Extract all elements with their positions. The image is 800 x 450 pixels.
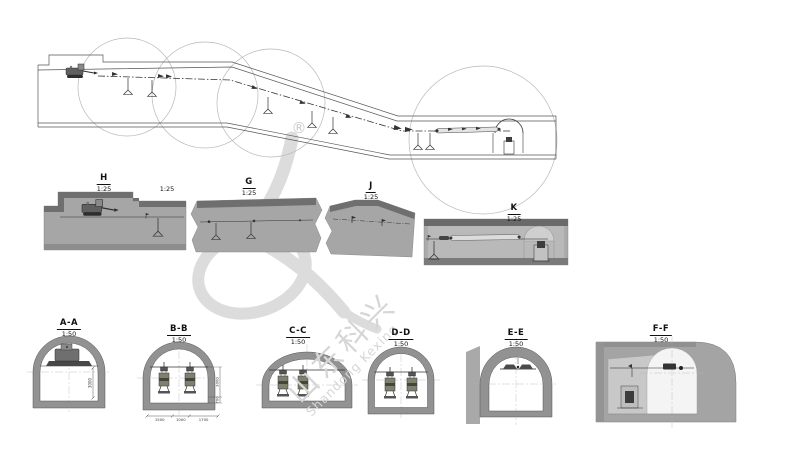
drawing-sheet: ® [0, 0, 800, 450]
belt-conveyor-plan [434, 127, 500, 133]
conveyor-supports [123, 78, 435, 150]
svg-text:1000: 1000 [176, 417, 186, 422]
plan-view [38, 38, 557, 214]
svg-text:700: 700 [215, 396, 220, 404]
svg-text:3000: 3000 [87, 377, 92, 388]
section-k-view [424, 219, 568, 265]
side-slab [466, 346, 480, 424]
dimension-b-horizontal: 1500 1000 1700 [146, 415, 220, 422]
conveyor-drive [663, 364, 676, 370]
roadheader-machine-plan [66, 64, 98, 78]
control-cabinet-plan [504, 137, 514, 154]
svg-text:1700: 1700 [199, 417, 209, 422]
cad-drawing: 3000 3000 700 [0, 0, 800, 450]
cross-section-d [362, 340, 440, 420]
tunnel-plan-outline [38, 55, 556, 159]
label-cross-section-f: F-F 1:50 [650, 317, 672, 344]
label-section-j: J 1:25 [364, 174, 379, 201]
section-j-view [325, 200, 415, 257]
label-cross-section-d: D-D 1:50 [388, 321, 413, 348]
svg-text:3000: 3000 [215, 377, 220, 387]
detail-callout-circles [78, 38, 557, 214]
section-g-view [191, 198, 322, 252]
cross-section-c [256, 344, 358, 414]
label-section-k: K 1:25 [507, 196, 522, 223]
label-plan-scale-note: 1:25 [160, 185, 175, 193]
pulley-dot [498, 128, 501, 131]
label-cross-section-e: E-E 1:50 [505, 321, 528, 348]
belt-conveyor-section-k [449, 235, 521, 241]
cross-section-f [596, 336, 736, 428]
label-cross-section-b: B-B 1:50 [167, 317, 191, 344]
label-cross-section-a: A-A 1:50 [57, 311, 81, 338]
label-cross-section-c: C-C 1:50 [286, 319, 310, 346]
section-h-view [44, 192, 186, 250]
cross-section-a: 3000 [27, 330, 111, 414]
dimension-a: 3000 [87, 367, 94, 400]
svg-text:1500: 1500 [155, 417, 165, 422]
pulley-dot [436, 129, 439, 132]
label-section-g: G 1:25 [242, 170, 257, 197]
cross-section-b: 3000 700 1500 1000 1700 [137, 337, 222, 422]
cross-section-e [466, 338, 558, 425]
label-section-h: H 1:25 [97, 166, 112, 193]
